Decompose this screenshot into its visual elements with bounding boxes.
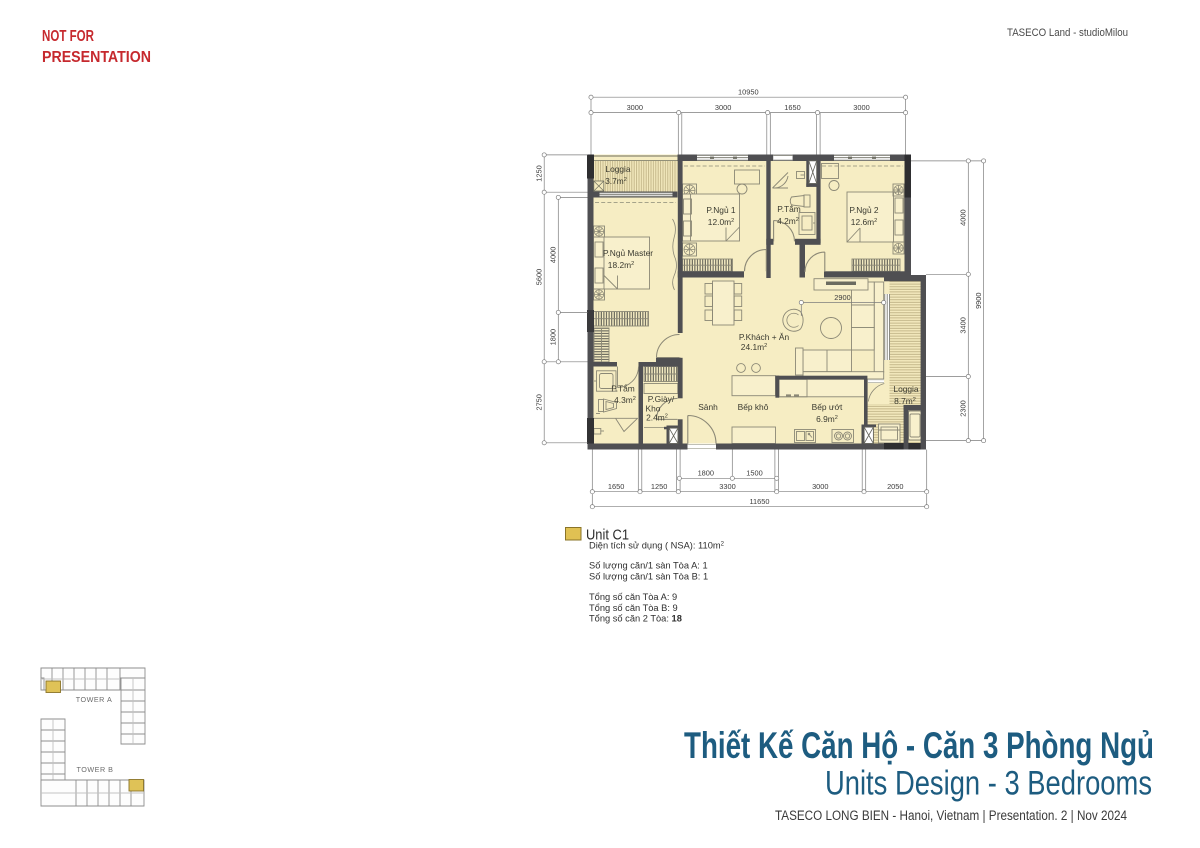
svg-text:1800: 1800: [549, 329, 558, 345]
svg-text:2.4m2: 2.4m2: [646, 413, 668, 423]
svg-text:1250: 1250: [535, 165, 544, 181]
svg-text:4.3m2: 4.3m2: [614, 395, 636, 405]
svg-text:4.2m2: 4.2m2: [777, 216, 799, 226]
svg-text:11650: 11650: [749, 497, 769, 506]
svg-text:Tổng số căn Tòa A: 9: Tổng số căn Tòa A: 9: [589, 592, 677, 602]
svg-text:TOWER B: TOWER B: [77, 765, 114, 774]
svg-text:3000: 3000: [627, 103, 643, 112]
svg-text:P.Giày/: P.Giày/: [648, 394, 675, 404]
svg-text:Bếp khô: Bếp khô: [738, 402, 769, 412]
svg-text:Số lượng căn/1 sàn Tòa B: 1: Số lượng căn/1 sàn Tòa B: 1: [589, 572, 708, 582]
svg-text:P.Tắm: P.Tắm: [611, 384, 635, 394]
svg-text:1250: 1250: [651, 482, 667, 491]
svg-text:12.6m2: 12.6m2: [851, 217, 877, 227]
svg-text:P.Tắm: P.Tắm: [777, 204, 801, 214]
svg-text:6.9m2: 6.9m2: [816, 414, 838, 424]
svg-text:P.Khách + Ăn: P.Khách + Ăn: [739, 332, 790, 342]
svg-text:TASECO Land - studioMilou: TASECO Land - studioMilou: [1007, 27, 1128, 39]
svg-text:3000: 3000: [853, 103, 869, 112]
svg-text:Units Design - 3 Bedrooms: Units Design - 3 Bedrooms: [825, 765, 1152, 803]
svg-text:3400: 3400: [959, 317, 968, 333]
svg-text:NOT FOR: NOT FOR: [42, 28, 94, 45]
svg-text:Diện tích sử dụng ( NSA): 110m: Diện tích sử dụng ( NSA): 110m2: [589, 541, 725, 551]
svg-text:24.1m2: 24.1m2: [741, 342, 767, 352]
svg-text:3000: 3000: [812, 482, 828, 491]
svg-text:Loggia: Loggia: [605, 164, 630, 174]
svg-text:1800: 1800: [698, 469, 714, 478]
svg-text:Sảnh: Sảnh: [698, 402, 718, 412]
svg-text:3000: 3000: [715, 103, 731, 112]
svg-text:Tổng số căn Tòa B: 9: Tổng số căn Tòa B: 9: [589, 603, 678, 613]
svg-text:12.0m2: 12.0m2: [708, 217, 734, 227]
svg-text:1650: 1650: [608, 482, 624, 491]
svg-text:2750: 2750: [535, 394, 544, 410]
svg-text:2050: 2050: [887, 482, 903, 491]
svg-text:2300: 2300: [959, 400, 968, 416]
svg-text:1650: 1650: [784, 103, 800, 112]
svg-text:5600: 5600: [535, 269, 544, 285]
svg-text:P.Ngủ 2: P.Ngủ 2: [849, 205, 879, 215]
svg-text:1500: 1500: [746, 469, 762, 478]
svg-text:10950: 10950: [738, 87, 759, 96]
svg-text:8.7m2: 8.7m2: [894, 396, 916, 406]
svg-text:TASECO LONG BIEN - Hanoi, Viet: TASECO LONG BIEN - Hanoi, Vietnam | Pres…: [775, 808, 1127, 823]
svg-text:Bếp ướt: Bếp ướt: [812, 402, 843, 412]
svg-text:3.7m2: 3.7m2: [605, 176, 627, 186]
svg-text:Tổng số căn 2 Tòa: 18: Tổng số căn 2 Tòa: 18: [589, 614, 682, 624]
svg-text:3300: 3300: [719, 482, 735, 491]
svg-text:PRESENTATION: PRESENTATION: [42, 49, 151, 66]
svg-text:18.2m2: 18.2m2: [608, 260, 634, 270]
svg-text:4000: 4000: [959, 209, 968, 225]
svg-text:P.Ngủ 1: P.Ngủ 1: [706, 205, 736, 215]
svg-text:Loggia: Loggia: [893, 384, 918, 394]
svg-text:Số lượng căn/1 sàn Tòa A: 1: Số lượng căn/1 sàn Tòa A: 1: [589, 561, 708, 571]
svg-text:4000: 4000: [549, 247, 558, 263]
svg-text:Thiết Kế Căn Hộ - Căn 3 Phòng: Thiết Kế Căn Hộ - Căn 3 Phòng Ngủ: [684, 725, 1154, 766]
svg-text:P.Ngủ Master: P.Ngủ Master: [603, 248, 653, 258]
svg-text:TOWER A: TOWER A: [76, 695, 113, 704]
svg-text:2900: 2900: [834, 293, 850, 302]
svg-text:9900: 9900: [974, 292, 983, 308]
